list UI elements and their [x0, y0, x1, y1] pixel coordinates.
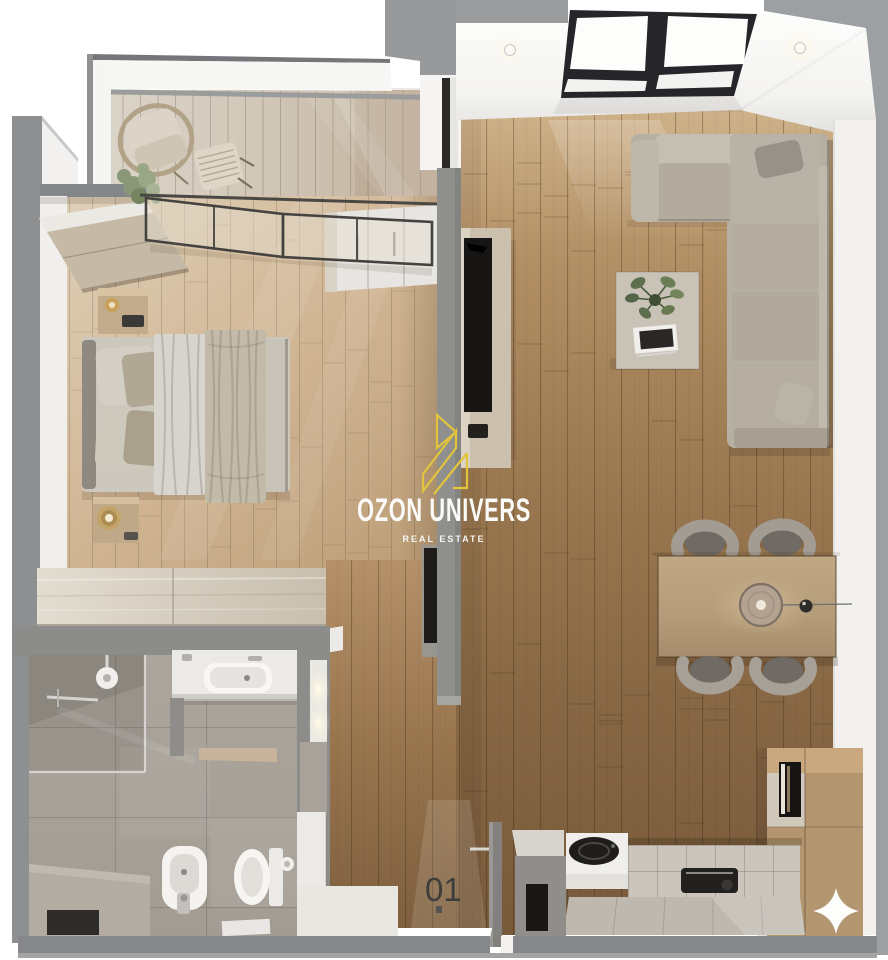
svg-text:01: 01: [425, 871, 462, 908]
svg-text:OZON UNIVERS: OZON UNIVERS: [357, 492, 531, 528]
svg-text:REAL ESTATE: REAL ESTATE: [402, 534, 485, 544]
